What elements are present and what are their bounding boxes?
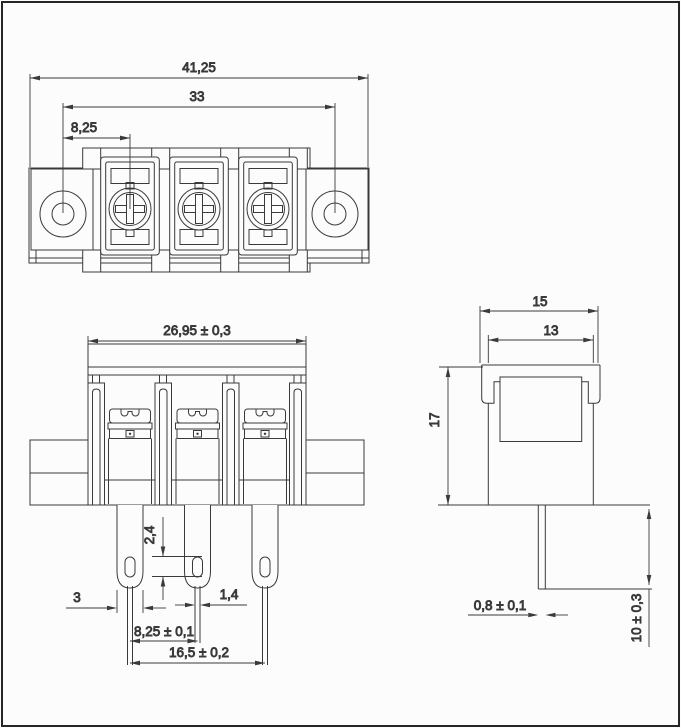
dim-label-outer-pin-spacing: 16,5 ± 0,2 <box>169 645 229 660</box>
dim-label-housing-width: 26,95 ± 0,3 <box>163 323 230 338</box>
dim-label-pin-hole-length: 2,4 <box>142 525 157 544</box>
screw-terminal-3 <box>239 157 298 255</box>
dim-housing-width: 26,95 ± 0,3 <box>88 323 306 344</box>
dim-housing-height: 17 <box>427 367 483 505</box>
top-view: 41,25 33 8,25 <box>29 60 369 272</box>
dim-body-depth: 13 <box>488 323 593 363</box>
barrier-wall-1 <box>88 375 105 505</box>
dim-pin-width: 3 <box>66 590 166 613</box>
dim-label-housing-height: 17 <box>427 412 442 427</box>
drawing-sheet: 41,25 33 8,25 <box>0 0 681 728</box>
dim-cap-width: 15 <box>480 294 598 363</box>
side-view: 15 13 17 0,8 ± 0,1 <box>427 294 652 647</box>
screw-terminal-2 <box>170 157 229 255</box>
dim-pin-length: 10 ± 0,3 <box>629 509 651 647</box>
front-view: 26,95 ± 0,3 2,4 3 1,4 <box>30 323 364 665</box>
dim-label-overall-width: 41,25 <box>182 60 216 75</box>
side-view-recess <box>500 377 582 442</box>
solder-pin-left <box>117 505 143 588</box>
terminal-block-drawing: 41,25 33 8,25 <box>0 0 681 728</box>
dim-tail-width: 1,4 <box>175 587 247 607</box>
dim-label-pin-pitch: 8,25 ± 0,1 <box>134 624 194 639</box>
barrier-wall-2 <box>155 375 172 505</box>
dim-label-body-depth: 13 <box>543 323 558 338</box>
dim-label-terminal-pitch: 8,25 <box>71 120 97 135</box>
barrier-wall-4 <box>290 375 307 505</box>
dim-pin-thickness: 0,8 ± 0,1 <box>468 598 568 617</box>
dim-label-cap-width: 15 <box>532 294 547 309</box>
side-view-pin <box>538 505 652 589</box>
dim-label-pin-length: 10 ± 0,3 <box>629 594 644 643</box>
dim-outer-pin-spacing: 16,5 ± 0,2 <box>130 645 265 665</box>
dim-label-pin-width: 3 <box>73 590 81 605</box>
solder-pin-right <box>252 505 278 588</box>
solder-pin-center <box>185 505 211 588</box>
dim-label-tail-width: 1,4 <box>220 587 239 602</box>
dim-pin-pitch: 8,25 ± 0,1 <box>130 624 198 643</box>
dim-label-hole-spacing: 33 <box>189 89 204 104</box>
barrier-wall-3 <box>223 375 240 505</box>
dim-label-pin-thickness: 0,8 ± 0,1 <box>474 598 526 613</box>
